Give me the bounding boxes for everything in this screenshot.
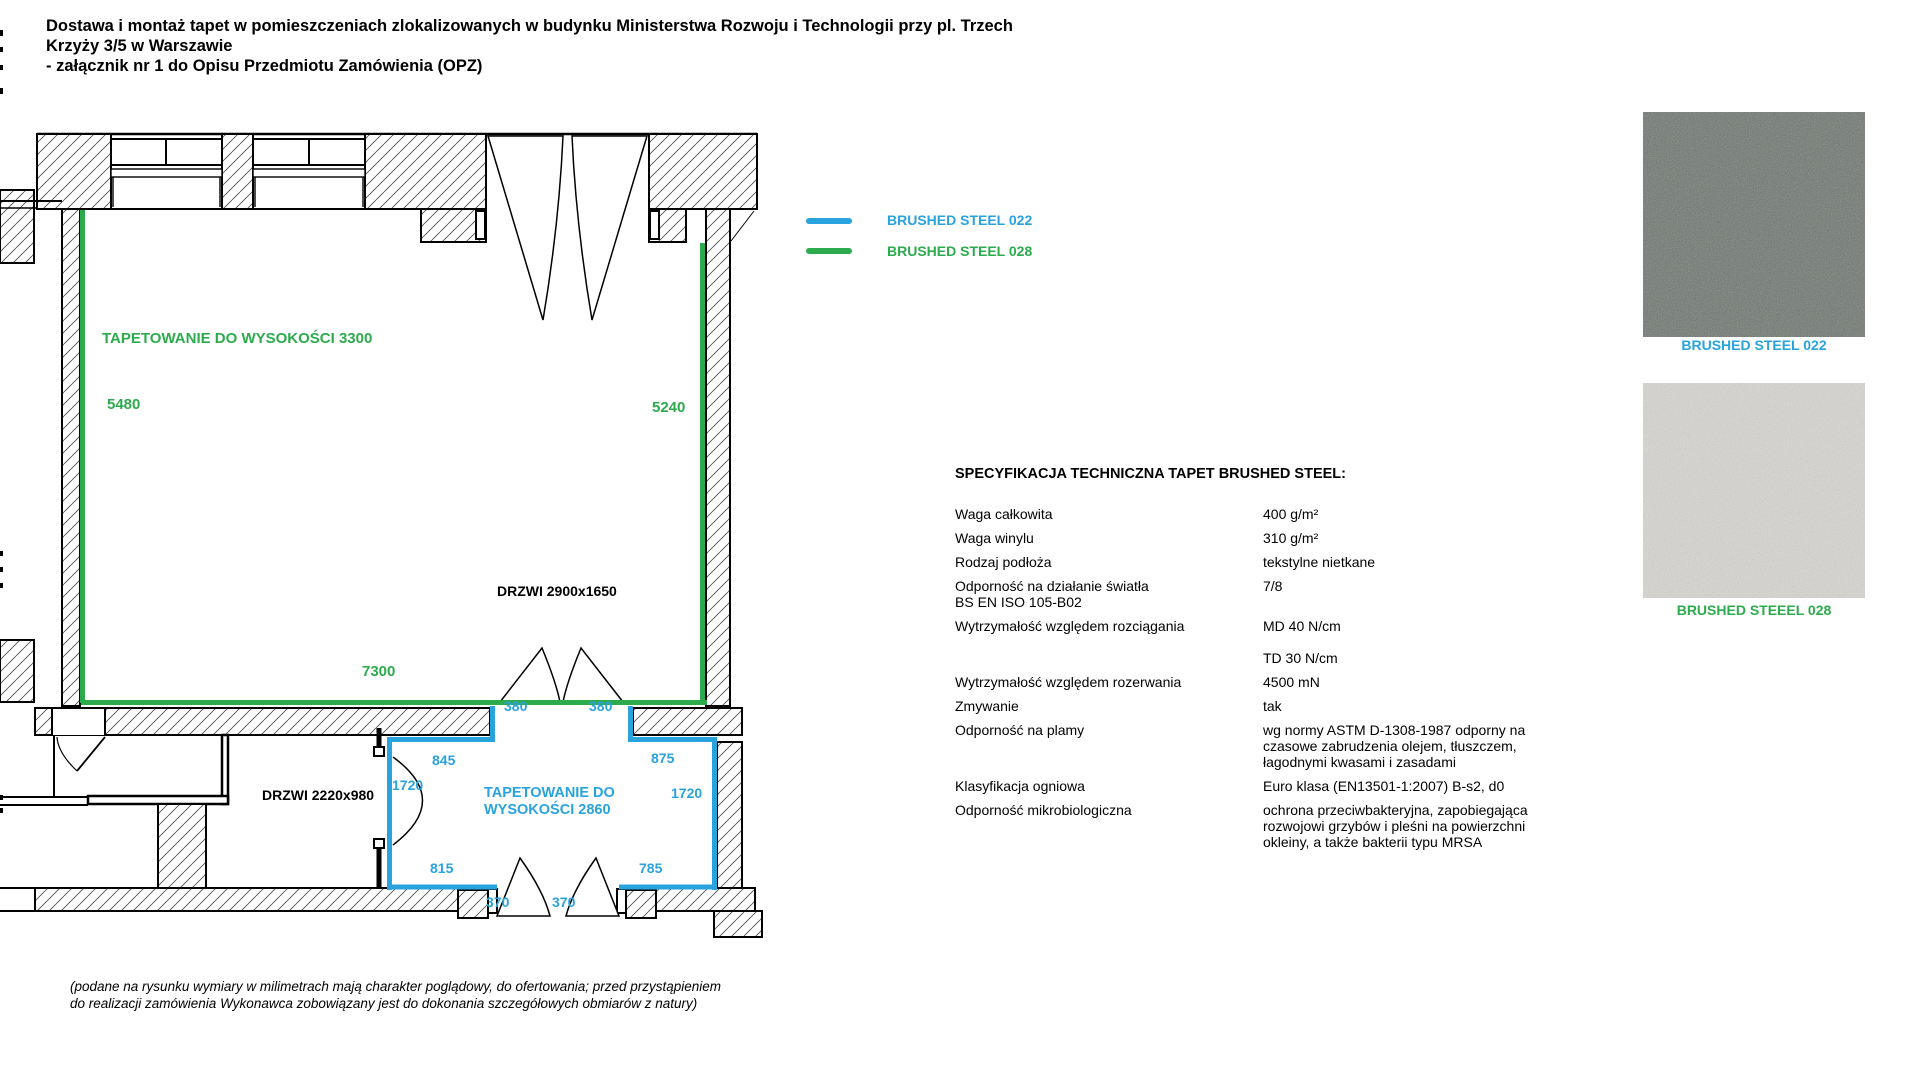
swatch-image-028 xyxy=(1643,383,1865,598)
spec-rows: Waga całkowita400 g/m²Waga winylu310 g/m… xyxy=(955,506,1595,858)
dim-785: 785 xyxy=(639,860,662,876)
dim-1720-right: 1720 xyxy=(671,785,702,801)
dim-875: 875 xyxy=(651,750,674,766)
dim-370-right: 370 xyxy=(552,894,575,910)
entrance-door-leaves xyxy=(488,136,647,320)
legend-label-028: BRUSHED STEEL 028 xyxy=(887,243,1032,259)
spec-row: Rodzaj podłożatekstylne nietkane xyxy=(955,554,1595,570)
dim-370-left: 370 xyxy=(486,894,509,910)
swatch-image-022 xyxy=(1643,112,1865,337)
spec-row-value: 310 g/m² xyxy=(1263,530,1595,546)
spec-row-value: 400 g/m² xyxy=(1263,506,1595,522)
dim-5240: 5240 xyxy=(652,399,685,416)
spec-row-label: Odporność na działanie światłaBS EN ISO … xyxy=(955,578,1263,610)
legend-swatch-line-blue xyxy=(806,218,852,224)
dim-7300: 7300 xyxy=(362,663,395,680)
legend-label-022: BRUSHED STEEL 022 xyxy=(887,212,1032,228)
spec-row: Wytrzymałość względem rozciąganiaMD 40 N… xyxy=(955,618,1595,666)
swatch-label-022: BRUSHED STEEL 022 xyxy=(1643,337,1865,353)
spec-heading: SPECYFIKACJA TECHNICZNA TAPET BRUSHED ST… xyxy=(955,466,1346,482)
spec-row-value: tekstylne nietkane xyxy=(1263,554,1595,570)
dim-380-left: 380 xyxy=(504,698,527,714)
door-label-2900: DRZWI 2900x1650 xyxy=(497,583,617,599)
spec-row-value: ochrona przeciwbakteryjna, zapobiegająca… xyxy=(1263,802,1595,850)
dim-845: 845 xyxy=(432,752,455,768)
spec-row: Odporność mikrobiologicznaochrona przeci… xyxy=(955,802,1595,850)
footnote: (podane na rysunku wymiary w milimetrach… xyxy=(70,978,721,1012)
lower-section-walls xyxy=(0,640,762,937)
spec-row: Wytrzymałość względem rozerwania4500 mN xyxy=(955,674,1595,690)
spec-row: Waga winylu310 g/m² xyxy=(955,530,1595,546)
dim-380-right: 380 xyxy=(589,698,612,714)
lower-wallpaper-note-line1: TAPETOWANIE DO xyxy=(484,785,615,802)
dim-1720-left: 1720 xyxy=(392,777,423,793)
room-a-door-arc xyxy=(57,737,77,771)
lower-wallpaper-note-line2: WYSOKOŚCI 2860 xyxy=(484,802,615,819)
floor-plan-drawing xyxy=(0,0,960,1050)
spec-row: Odporność na działanie światłaBS EN ISO … xyxy=(955,578,1595,610)
legend-swatch-line-green xyxy=(806,248,852,254)
wallpaper-line-green xyxy=(81,210,707,703)
spec-row-label: Wytrzymałość względem rozerwania xyxy=(955,674,1263,690)
spec-row-label: Waga winylu xyxy=(955,530,1263,546)
spec-row: Waga całkowita400 g/m² xyxy=(955,506,1595,522)
upper-room-bottom-door-leaves xyxy=(500,648,623,702)
dim-815: 815 xyxy=(430,860,453,876)
spec-row: Klasyfikacja ogniowaEuro klasa (EN13501-… xyxy=(955,778,1595,794)
spec-row-label: Rodzaj podłoża xyxy=(955,554,1263,570)
vestibule-side-door-arc xyxy=(393,757,423,845)
upper-room-walls xyxy=(0,134,757,735)
dim-5480: 5480 xyxy=(107,396,140,413)
spec-row-value: 4500 mN xyxy=(1263,674,1595,690)
door-label-2220: DRZWI 2220x980 xyxy=(262,787,374,803)
footnote-line1: (podane na rysunku wymiary w milimetrach… xyxy=(70,978,721,995)
spec-row-label: Waga całkowita xyxy=(955,506,1263,522)
window-1 xyxy=(111,139,222,207)
swatch-label-028: BRUSHED STEEEL 028 xyxy=(1643,602,1865,618)
spec-row: Odporność na plamywg normy ASTM D-1308-1… xyxy=(955,722,1595,770)
room-a-door-leaf xyxy=(77,737,105,771)
window-2 xyxy=(253,139,365,207)
spec-row-value: 7/8 xyxy=(1263,578,1595,610)
spec-row-value: tak xyxy=(1263,698,1595,714)
spec-row-label: Zmywanie xyxy=(955,698,1263,714)
spec-row-value: wg normy ASTM D-1308-1987 odporny naczas… xyxy=(1263,722,1595,770)
lower-wallpaper-note: TAPETOWANIE DO WYSOKOŚCI 2860 xyxy=(484,785,615,819)
spec-row: Zmywanietak xyxy=(955,698,1595,714)
spec-row-label: Odporność mikrobiologiczna xyxy=(955,802,1263,850)
upper-wallpaper-note: TAPETOWANIE DO WYSOKOŚCI 3300 xyxy=(102,330,372,347)
spec-row-label: Wytrzymałość względem rozciągania xyxy=(955,618,1263,666)
footnote-line2: do realizacji zamówienia Wykonawca zobow… xyxy=(70,995,721,1012)
document-page: Dostawa i montaż tapet w pomieszczeniach… xyxy=(0,0,1920,1080)
spec-row-value: MD 40 N/cmTD 30 N/cm xyxy=(1263,618,1595,666)
spec-row-label: Odporność na plamy xyxy=(955,722,1263,770)
spec-row-label: Klasyfikacja ogniowa xyxy=(955,778,1263,794)
spec-row-value: Euro klasa (EN13501-1:2007) B-s2, d0 xyxy=(1263,778,1595,794)
